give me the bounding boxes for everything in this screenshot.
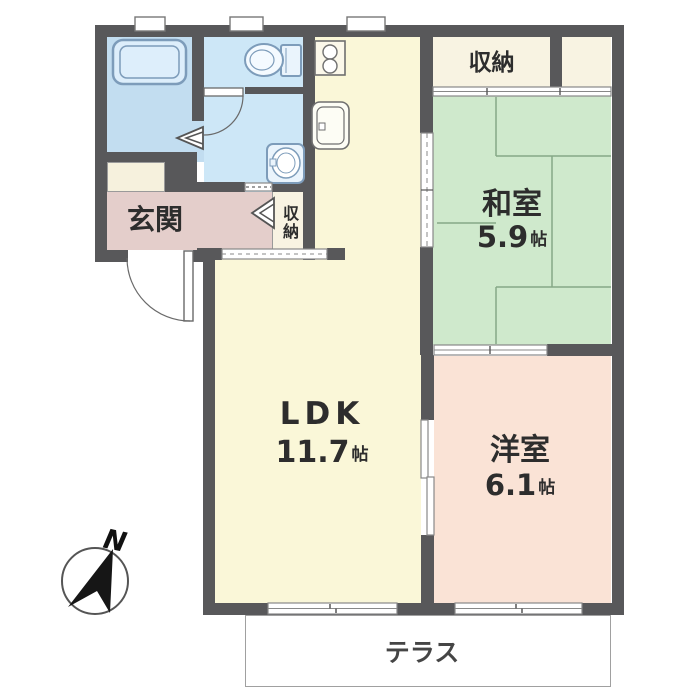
- terrace-label: テラス: [348, 634, 496, 668]
- sliding-door-ldk-western: [421, 420, 434, 535]
- entry-step-area: [107, 162, 165, 192]
- wall-western-west-a: [421, 355, 434, 420]
- bathroom-floor: [107, 37, 204, 162]
- kitchen-floor: [315, 37, 421, 260]
- wall-bottom: [203, 603, 624, 615]
- entry-label: 玄関: [110, 201, 200, 235]
- wall-washroom-south-b: [272, 182, 303, 192]
- wall-divider-east-top: [420, 37, 433, 133]
- compass-icon: N: [62, 524, 130, 614]
- ldk-label: LDK: [248, 396, 396, 432]
- western-room-label: 洋室: [458, 430, 582, 464]
- wall-ldk-west: [203, 250, 215, 615]
- ldk-size: 11.7帖: [248, 434, 396, 470]
- wall-divider-east-mid: [420, 247, 433, 355]
- wall-left: [95, 25, 107, 262]
- wall-bath-south: [107, 152, 197, 162]
- closet-top-label: 収納: [433, 45, 550, 75]
- wall-right: [612, 25, 624, 615]
- floorplan-canvas: N 和室 5.9帖 洋室 6.1帖 LDK 11.7帖 玄関 収納 収納 テラス: [0, 0, 700, 700]
- sliding-door-ldk-tatami: [421, 133, 433, 247]
- front-door-icon: [127, 251, 193, 321]
- sliding-door-closet-top: [433, 87, 611, 96]
- wall-bath-east: [192, 37, 204, 121]
- toilet-room-floor: [204, 37, 303, 93]
- wall-tatami-south: [547, 344, 612, 356]
- wall-ldk-north-a: [197, 248, 222, 260]
- wall-entry-bottom-left: [95, 250, 128, 262]
- sliding-door-tatami-western: [434, 345, 547, 355]
- wall-ldk-north-b: [327, 248, 345, 260]
- tatami-room-size: 5.9帖: [450, 220, 574, 254]
- wall-top: [95, 25, 624, 37]
- compass-north-label: N: [101, 524, 130, 559]
- washroom-floor: [204, 93, 303, 192]
- western-room-size: 6.1帖: [458, 468, 582, 502]
- wall-western-west-b: [421, 535, 434, 605]
- wall-washroom-south-a: [197, 182, 245, 192]
- wall-closet-stub: [550, 37, 562, 87]
- tatami-room-label: 和室: [450, 184, 574, 218]
- wall-toilet-washroom: [245, 87, 303, 94]
- closet-hall-label: 収納: [276, 197, 302, 249]
- wall-kitchen-west: [303, 37, 315, 260]
- wall-entry-block: [165, 162, 197, 192]
